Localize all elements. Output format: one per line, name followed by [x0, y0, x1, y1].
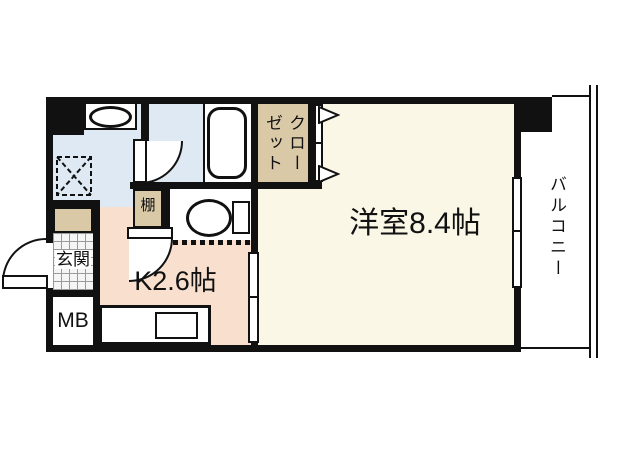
balcony-label: バルコニー — [544, 168, 566, 286]
shelf-label: 棚 — [133, 197, 163, 214]
bathtub — [207, 107, 247, 179]
meter-box-label: MB — [53, 309, 93, 333]
shoe-cabinet — [53, 207, 93, 233]
bath-door-swing — [133, 139, 185, 185]
closet-label: クローゼット — [259, 111, 307, 177]
balcony-rail-line — [589, 85, 591, 358]
balcony-window-joint — [512, 230, 522, 232]
toilet-bowl — [186, 199, 232, 237]
kitchen-label: K2.6帖 — [113, 266, 238, 297]
balcony-rail-line — [596, 85, 598, 358]
closet-door-joint — [314, 142, 323, 144]
washbasin — [89, 106, 132, 128]
toilet-tank — [232, 201, 250, 234]
wall-bottom — [46, 345, 521, 352]
sliding-door-joint — [248, 296, 259, 298]
wall-right-lower — [514, 288, 521, 352]
balcony-edge-bottom — [521, 347, 589, 349]
wall-left-upper — [46, 97, 53, 243]
balcony-window — [512, 177, 522, 288]
wall-washroom-bottom — [46, 200, 100, 207]
front-door-swing — [2, 236, 48, 290]
kitchen-sink — [155, 312, 198, 339]
wall-top — [46, 97, 521, 104]
wall-left-lower — [46, 288, 53, 352]
wall-entrance-right — [93, 200, 100, 345]
western-room-label: 洋室8.4帖 — [330, 207, 500, 242]
wall-mb-top — [46, 290, 100, 297]
balcony-edge-top — [552, 95, 589, 97]
wall-corner-block-topright — [514, 97, 552, 132]
closet-door-arrow — [318, 106, 340, 124]
wall-corner-block-topleft — [53, 104, 84, 135]
closet-door-arrow — [318, 165, 340, 183]
entrance-label: 玄関 — [51, 250, 95, 270]
toilet-accordion-door — [173, 240, 251, 245]
entrance-label-text: 玄関 — [55, 250, 91, 269]
washing-machine-space — [55, 155, 93, 197]
floor-plan: 洋室8.4帖 K2.6帖 クローゼット バルコニー 玄関 MB 棚 — [0, 0, 640, 455]
wall-washroom-bath — [141, 104, 149, 141]
